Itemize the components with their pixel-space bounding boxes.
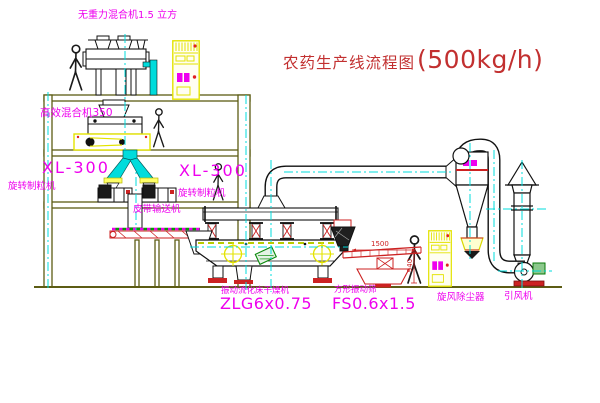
induced-draft-fan-machine: [514, 263, 545, 287]
granulator-left-machine: [98, 185, 132, 202]
worker-floor2: [154, 109, 164, 147]
granulator-right-machine: [142, 185, 176, 202]
label-cyclone: 旋风除尘器: [437, 293, 485, 303]
worker-roof: [70, 45, 82, 90]
label-screen-model: FS0.6x1.5: [332, 296, 416, 312]
dim-screen-height: 940: [407, 259, 414, 272]
control-cabinet-bottom: [429, 231, 452, 286]
title-text: 农药生产线流程图: [283, 51, 415, 73]
cad-flow-diagram: 农药生产线流程图 (500kg/h) 无重力混合机1.5 立方 高效混合机350…: [0, 0, 600, 403]
fan-motor: [533, 263, 545, 274]
label-granulator-left: 旋转制粒机: [8, 182, 56, 192]
diagram-title: 农药生产线流程图 (500kg/h): [283, 45, 543, 74]
label-gravity-mixer: 无重力混合机1.5 立方: [78, 11, 177, 21]
label-xl300-right: XL-300: [179, 163, 247, 179]
vibrating-screen-machine: [331, 220, 421, 288]
label-belt-conveyor: 皮带输送机: [133, 205, 181, 215]
mixer-base-cabinet: [74, 134, 150, 150]
gravity-free-mixer: [83, 36, 157, 95]
label-granulator-right: 旋转制粒机: [178, 189, 226, 199]
label-xl300-left: XL-300: [42, 160, 110, 176]
pipe-flange-circle: [453, 148, 469, 164]
label-dryer-model: ZLG6x0.75: [220, 296, 312, 312]
label-high-eff-mixer: 高效混合机350: [40, 108, 113, 119]
control-cabinet-top: [173, 41, 199, 99]
label-fan: 引风机: [504, 292, 533, 302]
title-capacity: (500kg/h): [417, 45, 543, 74]
dim-screen-width: 1500: [371, 241, 389, 248]
mixer-down-pipe: [150, 60, 157, 95]
